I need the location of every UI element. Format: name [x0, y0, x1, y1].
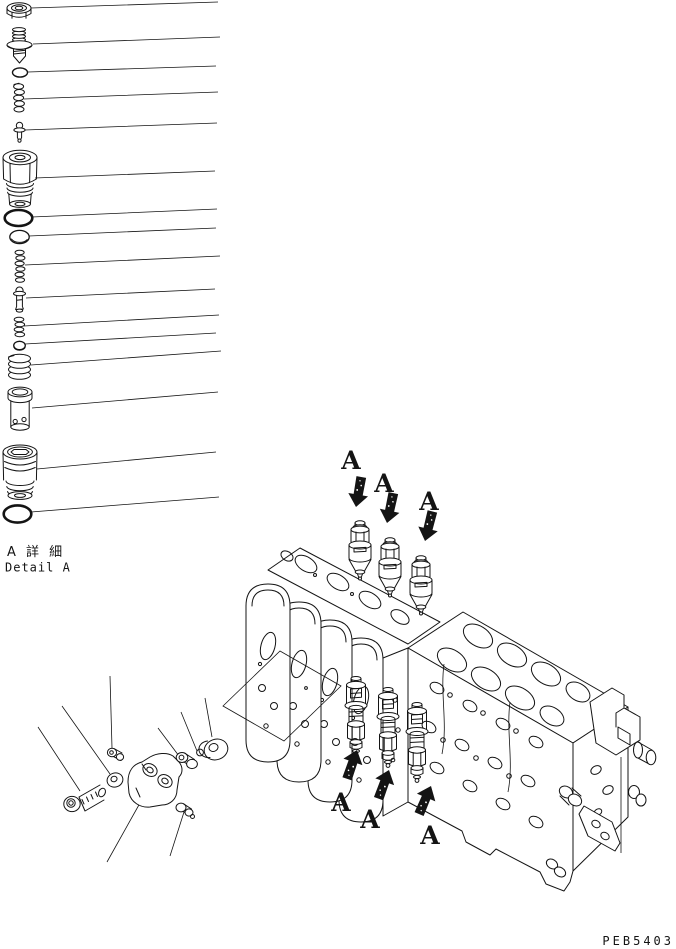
section-marker-a: A [418, 487, 439, 516]
valve-sleeve-icon [8, 387, 32, 430]
section-marker-a: A [330, 788, 351, 817]
spring-2-icon [15, 250, 25, 282]
relief-valve-body-icon [3, 150, 37, 207]
main-valve-block: A A A A A A [38, 446, 656, 891]
detail-caption-en: Detail A [5, 561, 71, 575]
small-o-ring-icon [13, 68, 28, 77]
threaded-plug-icon [7, 28, 32, 63]
top-valve-cartridge [410, 556, 432, 615]
top-valve-cartridge [379, 538, 401, 597]
flat-washer-icon [105, 771, 125, 790]
backup-ring-icon [10, 230, 29, 243]
cover-block-icon [128, 753, 182, 807]
detail-caption-jp: A 詳 細 [7, 544, 65, 560]
lower-plug-icon [176, 803, 195, 818]
large-o-ring-icon [4, 505, 32, 522]
thick-o-ring-icon [5, 210, 33, 226]
section-marker-a: A [359, 805, 380, 834]
coil-spring-icon [9, 354, 31, 379]
detail-callout-leader-lines [24, 2, 221, 512]
valve-assembly-diagram: A 詳 細 Detail A [0, 0, 676, 949]
section-slab [246, 584, 290, 762]
plug-pin-icon [107, 748, 123, 760]
hex-nut-icon [7, 3, 31, 18]
parts-diagram-page: A 詳 細 Detail A [0, 0, 676, 949]
spring-1-icon [14, 83, 25, 112]
poppet-valve-2-icon [14, 287, 26, 312]
drawing-code: PEB5403 [602, 934, 674, 948]
socket-bolt-icon [64, 785, 107, 812]
poppet-valve-1-icon [14, 122, 25, 142]
grommet-icon [199, 736, 231, 763]
end-cover-assembly [64, 736, 231, 819]
washer-icon [14, 341, 26, 350]
section-marker-a: A [340, 446, 361, 475]
top-valve-cartridge [349, 521, 371, 580]
section-marker-a: A [373, 469, 394, 498]
section-marker-a: A [419, 821, 440, 850]
cover-leader-lines [38, 676, 212, 862]
callout-arrow-down-icon [346, 475, 371, 509]
detail-a-exploded-view: A 詳 細 Detail A [3, 2, 221, 575]
main-valve-body-icon [3, 445, 37, 499]
small-spring-stack-icon [14, 317, 24, 336]
